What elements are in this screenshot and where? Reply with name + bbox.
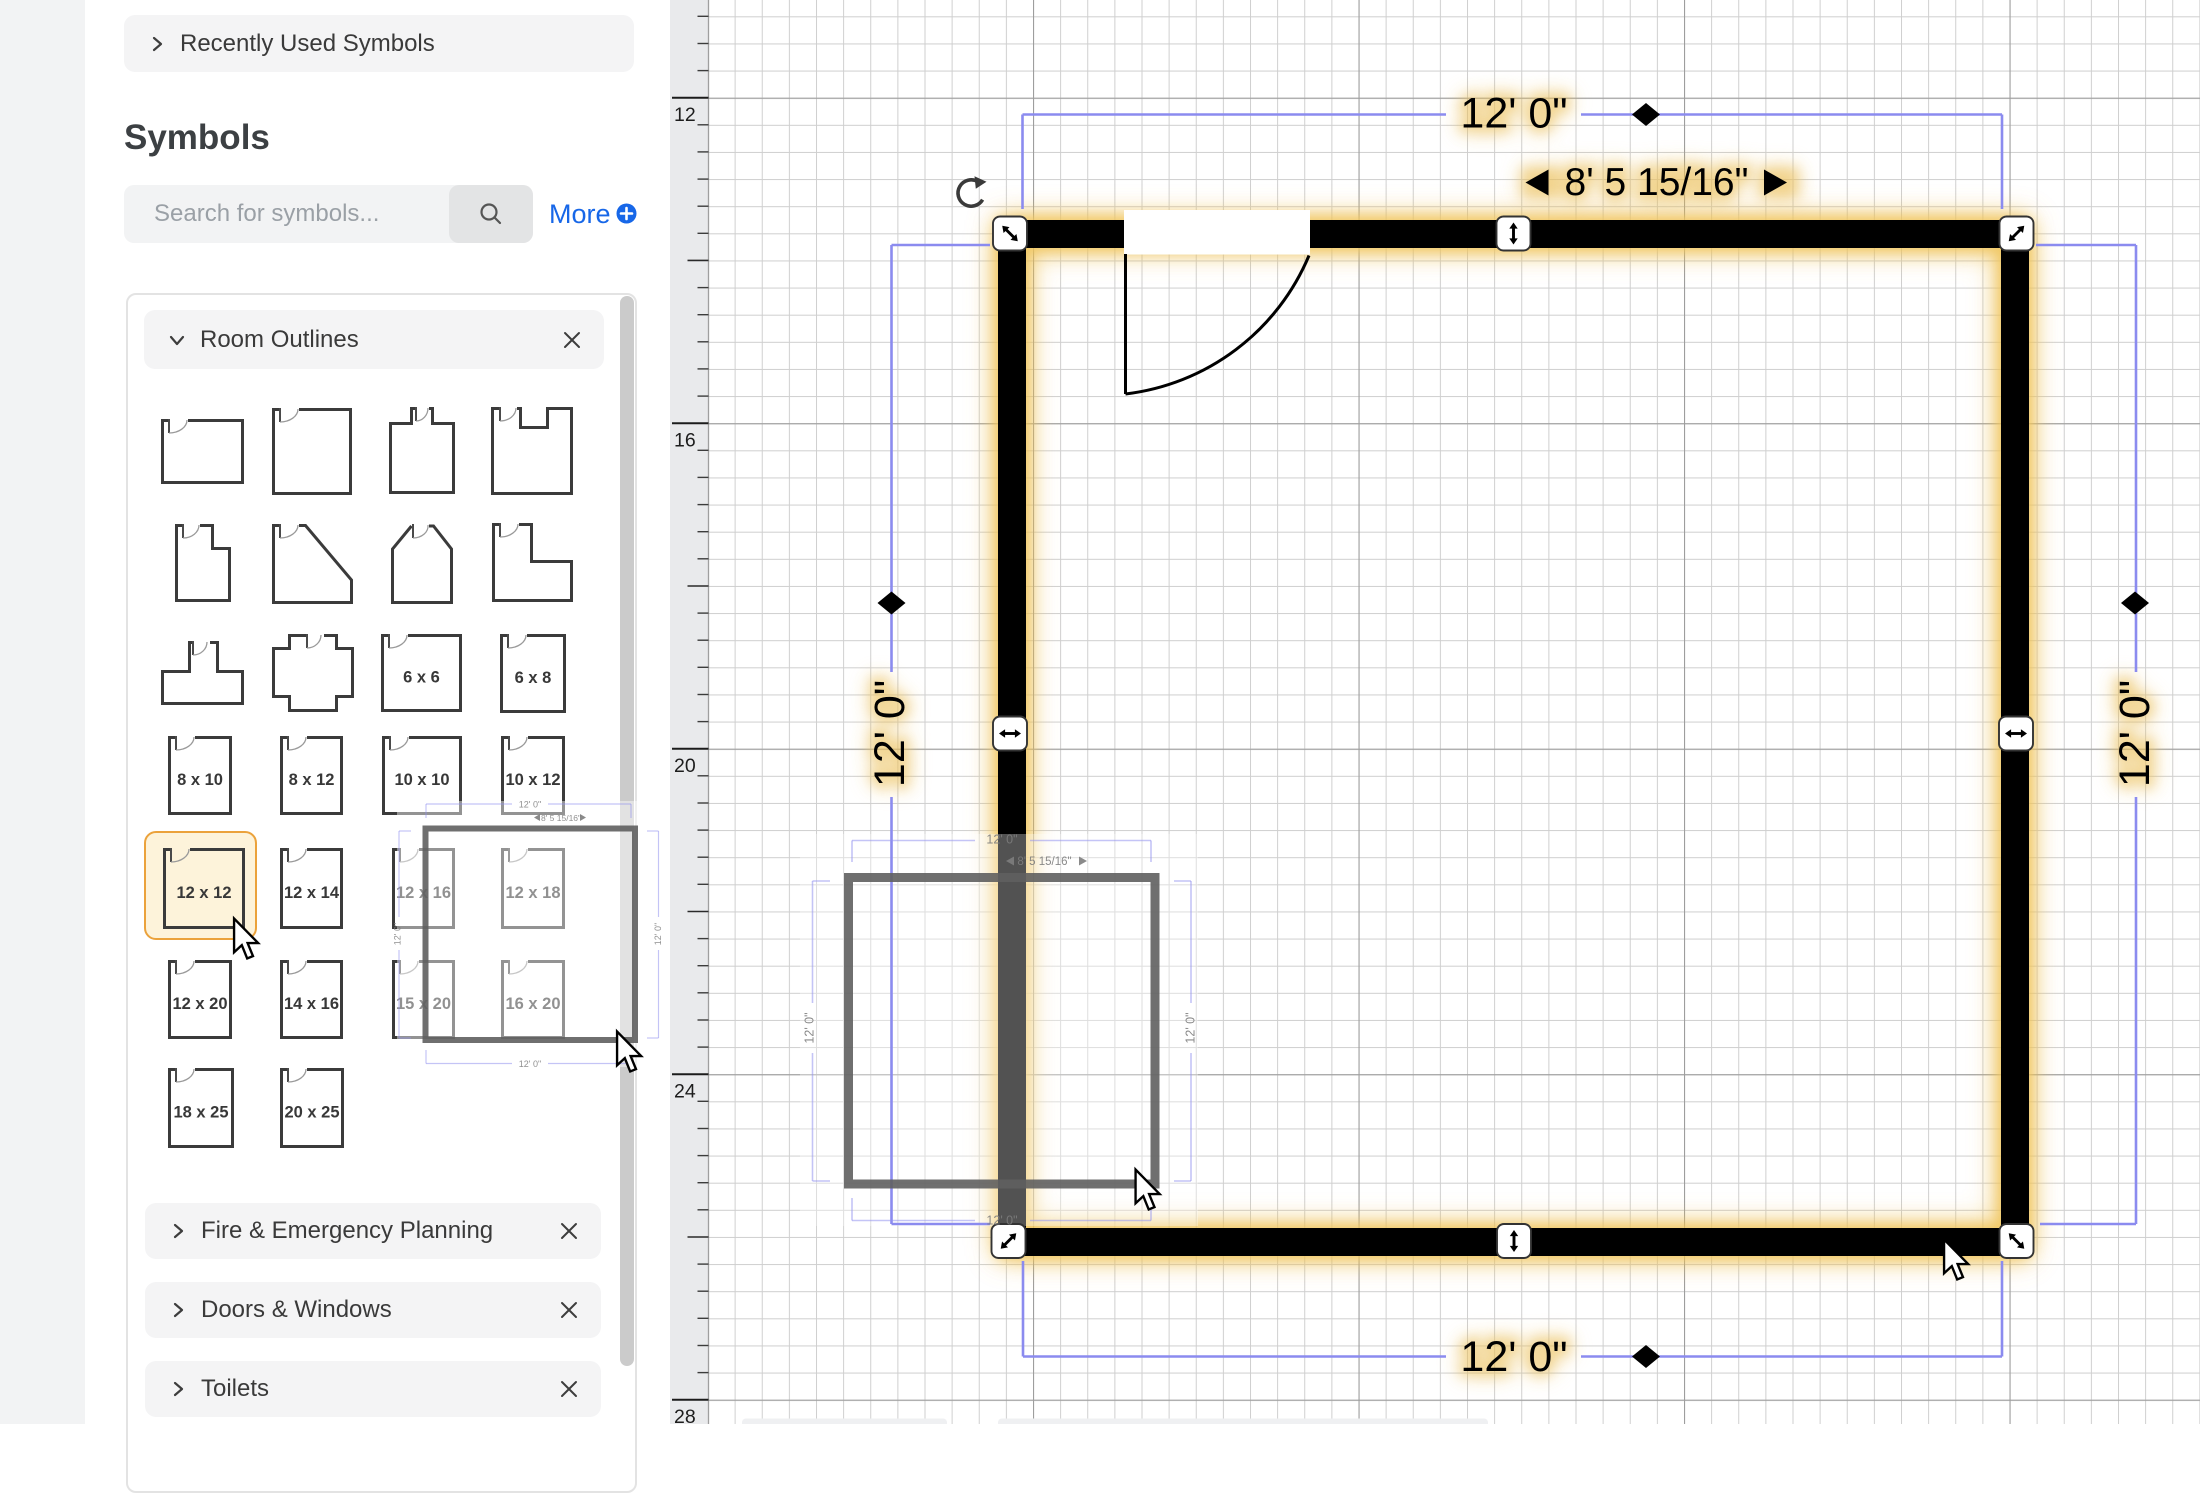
svg-text:12' 0": 12' 0" xyxy=(986,833,1017,847)
svg-text:8' 5 15/16": 8' 5 15/16" xyxy=(1565,161,1749,204)
svg-text:28: 28 xyxy=(674,1406,696,1424)
svg-text:12' 0": 12' 0" xyxy=(519,800,541,810)
svg-text:12' 0": 12' 0" xyxy=(986,1214,1017,1228)
svg-text:12' 0": 12' 0" xyxy=(866,680,914,787)
svg-text:8' 5 15/16": 8' 5 15/16" xyxy=(1017,856,1071,868)
svg-text:12' 0": 12' 0" xyxy=(803,1012,817,1043)
svg-text:12' 0": 12' 0" xyxy=(653,923,663,945)
svg-text:12' 0": 12' 0" xyxy=(1460,1333,1567,1381)
svg-text:12' 0": 12' 0" xyxy=(519,1059,541,1069)
svg-text:24: 24 xyxy=(674,1081,696,1103)
svg-text:8' 5 15/16": 8' 5 15/16" xyxy=(541,813,581,823)
svg-text:12' 0": 12' 0" xyxy=(2111,680,2159,787)
svg-text:20: 20 xyxy=(674,755,696,777)
svg-text:12' 0": 12' 0" xyxy=(1184,1012,1198,1043)
svg-text:12' 0": 12' 0" xyxy=(393,923,403,945)
svg-text:16: 16 xyxy=(674,430,696,452)
svg-text:12' 0": 12' 0" xyxy=(1460,90,1567,138)
svg-text:12: 12 xyxy=(674,104,696,126)
